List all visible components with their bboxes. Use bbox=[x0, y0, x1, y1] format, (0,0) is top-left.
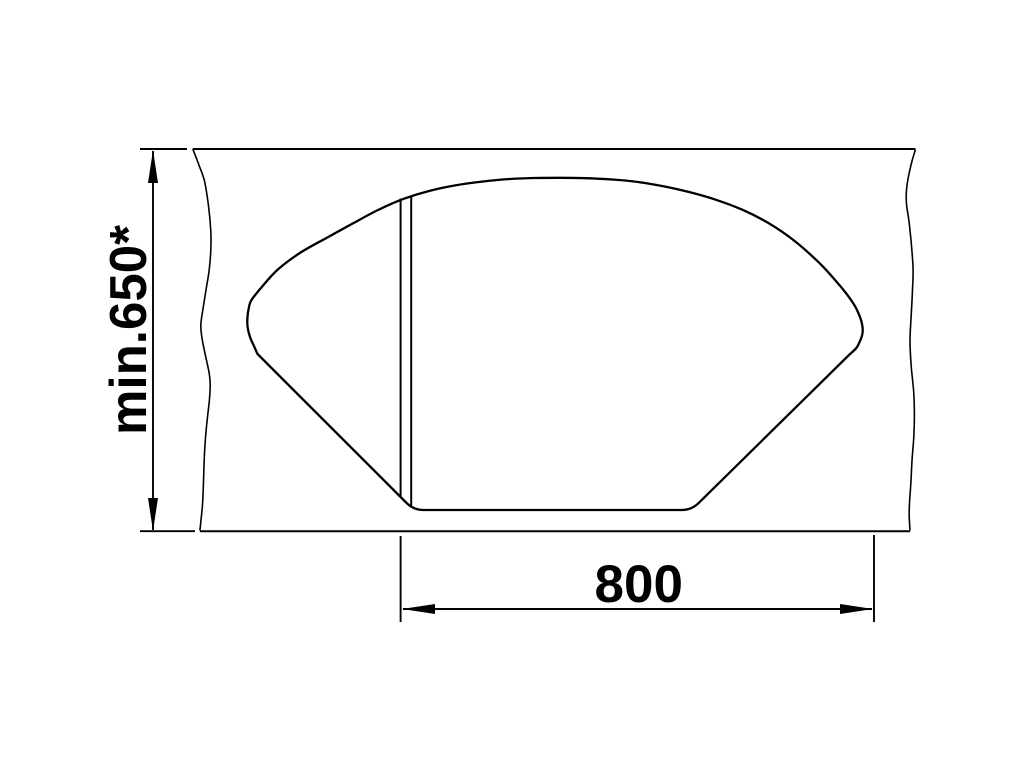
svg-text:800: 800 bbox=[595, 555, 683, 614]
svg-text:min.650*: min.650* bbox=[100, 224, 158, 435]
